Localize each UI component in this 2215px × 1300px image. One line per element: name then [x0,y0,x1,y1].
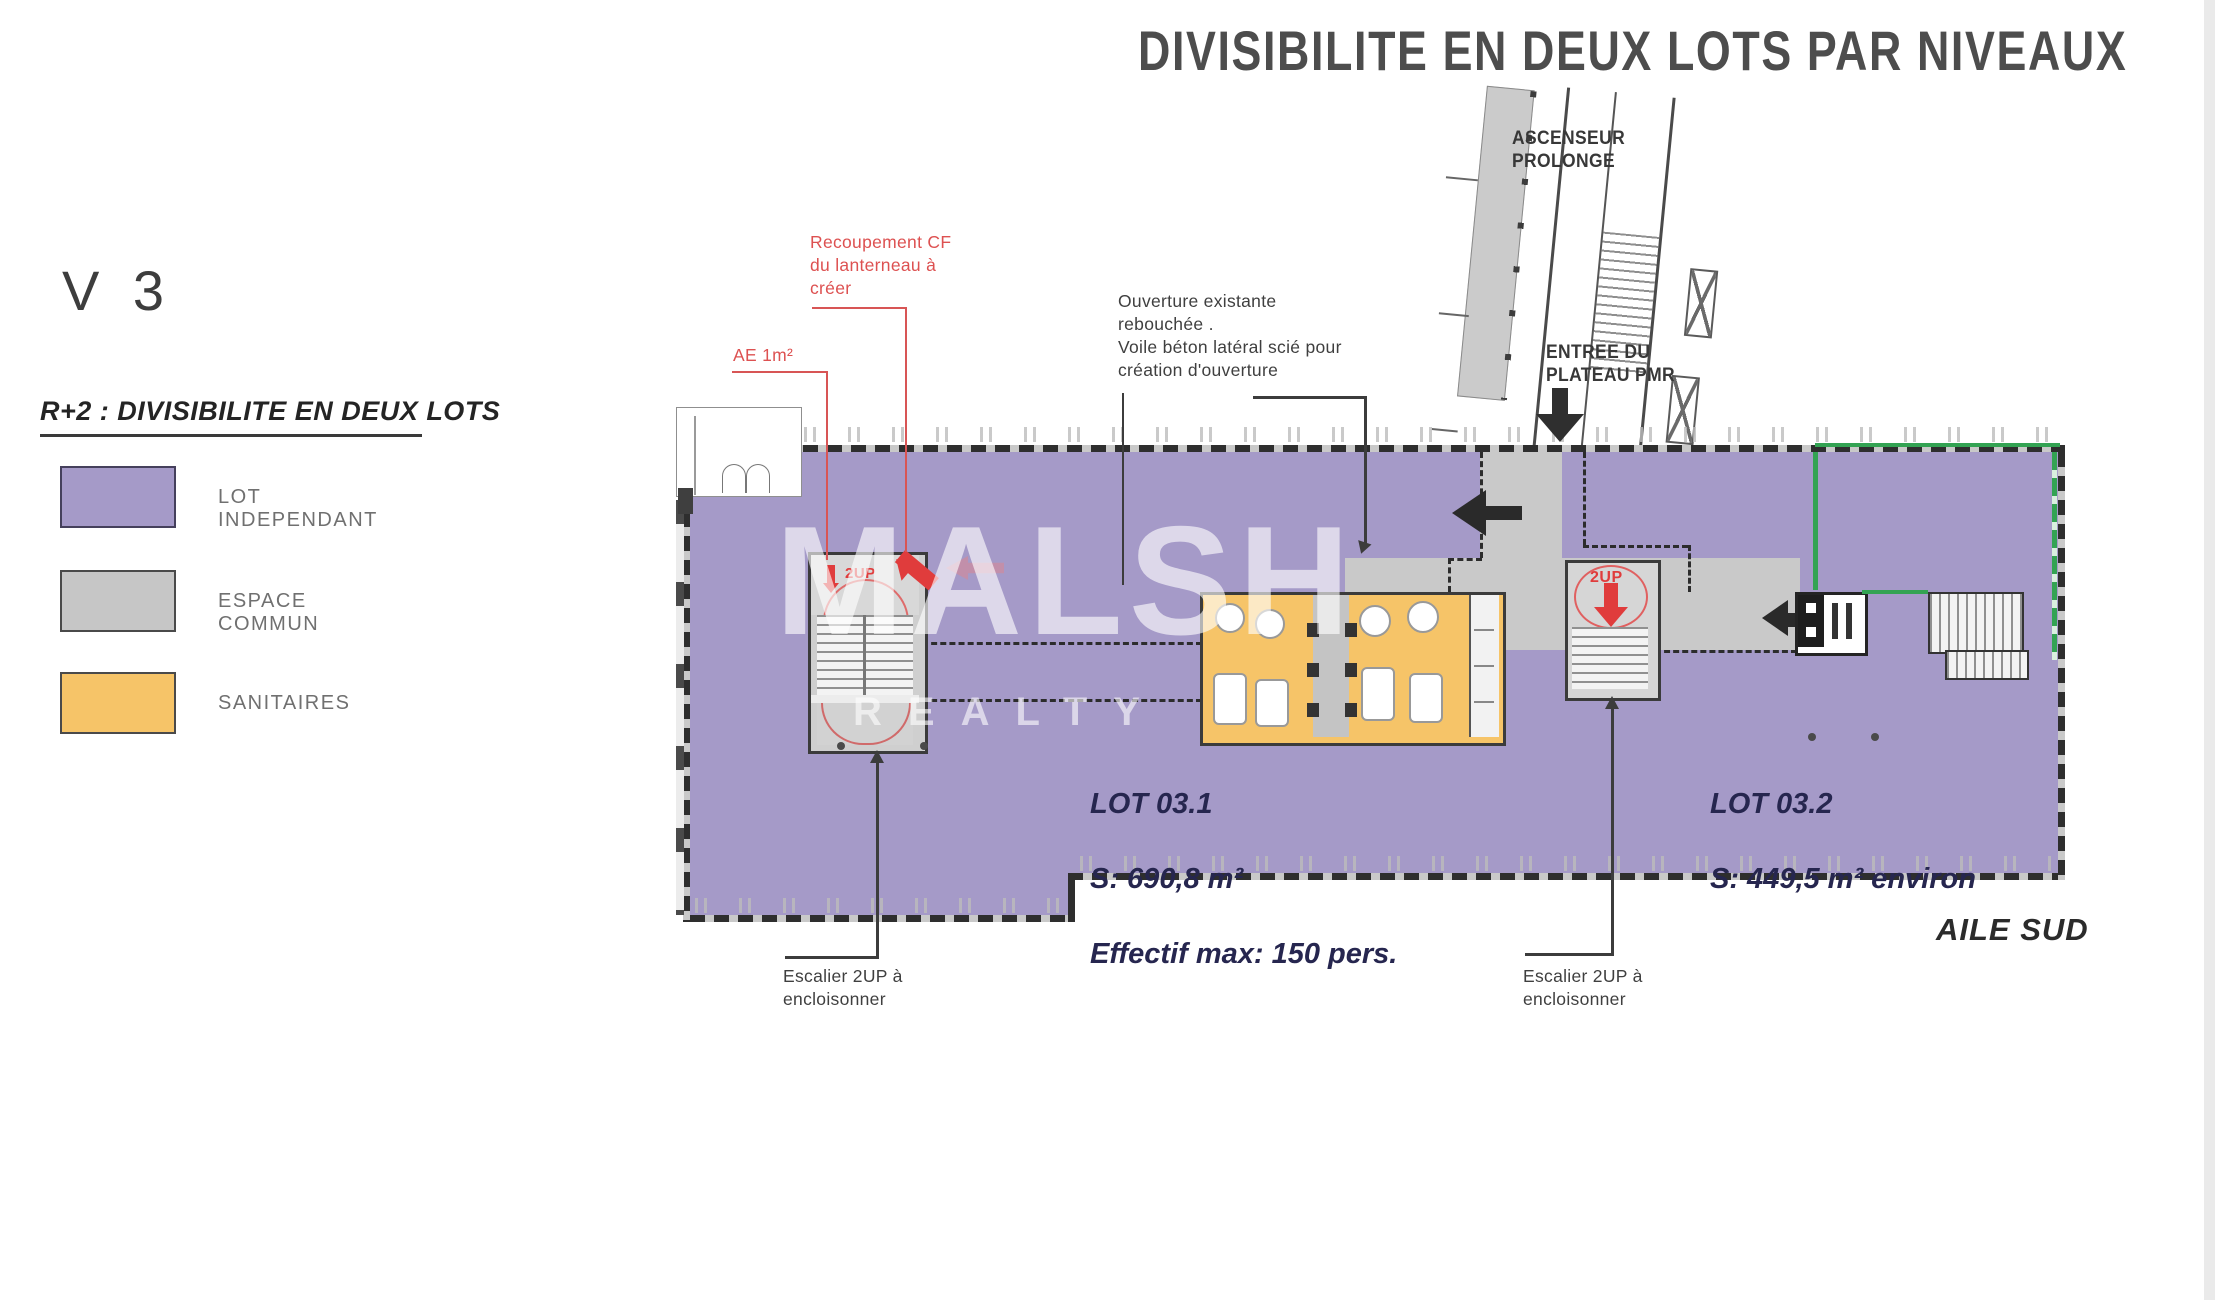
annotation-entree: ENTREE DU PLATEAU PMR [1546,342,1675,388]
leader-line [1122,393,1124,585]
leader-line [1525,953,1614,956]
lot-boundary [1688,545,1691,592]
lot-boundary [1583,545,1688,548]
legend-swatch-sanitaires [60,672,176,734]
door-swing-icon [746,464,770,493]
lot2-surface: S: 449,5 m² environ [1710,863,1976,895]
column-dot [1808,733,1816,741]
lot-03-1-area-left [690,494,760,915]
lot1-capacity: Effectif max: 150 pers. [1090,938,1397,970]
green-riser-line [1813,452,1818,590]
corridor-thin [1345,558,1485,592]
stall-icon [1255,679,1289,727]
version-label: V 3 [62,258,173,323]
stair-flight-hatch [1572,627,1648,689]
leader-line [826,371,828,560]
heading-underline [40,434,422,437]
toilet-fixture-icon [1359,605,1391,637]
watermark-subtitle: REALTY [853,690,1166,735]
partition-block [1307,703,1319,717]
annotation-ascenseur: ASCENSEUR PROLONGE [1512,128,1625,174]
stall-icon [1213,673,1247,725]
big-red-down-arrow-icon [1594,607,1628,627]
elevator-cab [1798,595,1824,647]
lot1-surface: S: 690,8 m² [1090,863,1243,895]
black-left-arrow-icon [1484,506,1522,520]
partition-block [1345,703,1357,717]
leader-line [1611,708,1614,955]
corner-wall-block [678,488,693,514]
walkway-stub [1446,176,1478,181]
big-red-down-arrow-icon [1604,583,1618,609]
green-facade-line [1815,443,2060,447]
shelf-line [1474,665,1494,667]
shelf-line [1474,629,1494,631]
green-facade-line-right [2052,452,2057,660]
existing-stair-lower [1945,650,2029,680]
stairwell-right: 2UP [1565,560,1661,701]
legend-swatch-commun [60,570,176,632]
elevator-block [1795,592,1868,656]
annotation-ae: AE 1m² [733,344,793,367]
page-title: DIVISIBILITE EN DEUX LOTS PAR NIVEAUX [1138,18,2127,83]
existing-stair-upper [1928,592,2024,654]
lot-boundary [1448,558,1451,592]
black-left-arrow-icon [1762,600,1788,636]
sanitaires-right-service [1469,595,1499,737]
leader-line [812,307,907,309]
black-left-arrow-icon [1452,490,1486,536]
column-dot [1871,733,1879,741]
leader-line [876,762,879,958]
elevator-notch [1806,627,1816,637]
stall-icon [1361,667,1395,721]
elevator-door-mark [1832,603,1838,639]
lot-boundary [1583,452,1586,545]
floor-plan-page: 2UP [0,0,2215,1300]
leader-line [732,371,828,373]
wall-right [2058,452,2065,880]
leader-line [785,956,879,959]
wall-bottom-left [690,915,1075,922]
facade-ticks-bottom-left [695,898,1070,913]
leader-line [1364,396,1367,546]
page-edge-strip [2204,0,2215,1300]
entry-arrow-icon [1552,388,1568,416]
section-heading: R+2 : DIVISIBILITE EN DEUX LOTS [40,396,500,427]
lot2-name: LOT 03.2 [1710,788,1833,820]
leader-arrowhead-icon [1605,696,1619,709]
green-wall-line [1862,590,1928,594]
shelf-line [1474,701,1494,703]
legend-label-commun: ESPACE COMMUN [218,590,319,636]
leader-line [905,307,907,552]
annotation-recoupement: Recoupement CF du lanterneau à créer [810,231,951,300]
legend-swatch-lot [60,466,176,528]
annotation-escalier-left: Escalier 2UP à encloisonner [783,965,903,1011]
wing-label: AILE SUD [1936,912,2089,948]
annotation-escalier-right: Escalier 2UP à encloisonner [1523,965,1643,1011]
door-swing-icon [722,464,746,493]
watermark-logo: MALSH [775,492,1356,670]
annotation-ouverture: Ouverture existante rebouchée . Voile bé… [1118,290,1342,382]
lot-boundary [1655,650,1797,653]
column-dot [837,742,845,750]
lot1-name: LOT 03.1 [1090,788,1213,820]
lot-boundary [1448,558,1482,561]
leader-line [1253,396,1366,399]
column-dot [920,742,928,750]
facade-ticks-left-wall [676,500,684,915]
elevator-door-mark [1846,603,1852,639]
toilet-fixture-icon [1407,601,1439,633]
leader-arrowhead-icon [870,750,884,763]
legend-label-sanitaires: SANITAIRES [218,692,350,715]
wall-left [683,488,690,922]
terrace-inner-line [694,416,696,495]
lot2-label: LOT 03.2 S: 449,5 m² environ [1710,748,1976,899]
stall-icon [1409,673,1443,723]
facade-ticks-top [760,427,2050,442]
elevator-notch [1806,603,1816,613]
facade-glazing-box [1684,268,1718,338]
lot1-label: LOT 03.1 S: 690,8 m² Effectif max: 150 p… [1090,748,1397,974]
legend-label-lot: LOT INDEPENDANT [218,486,378,532]
entry-arrow-icon [1536,414,1584,442]
